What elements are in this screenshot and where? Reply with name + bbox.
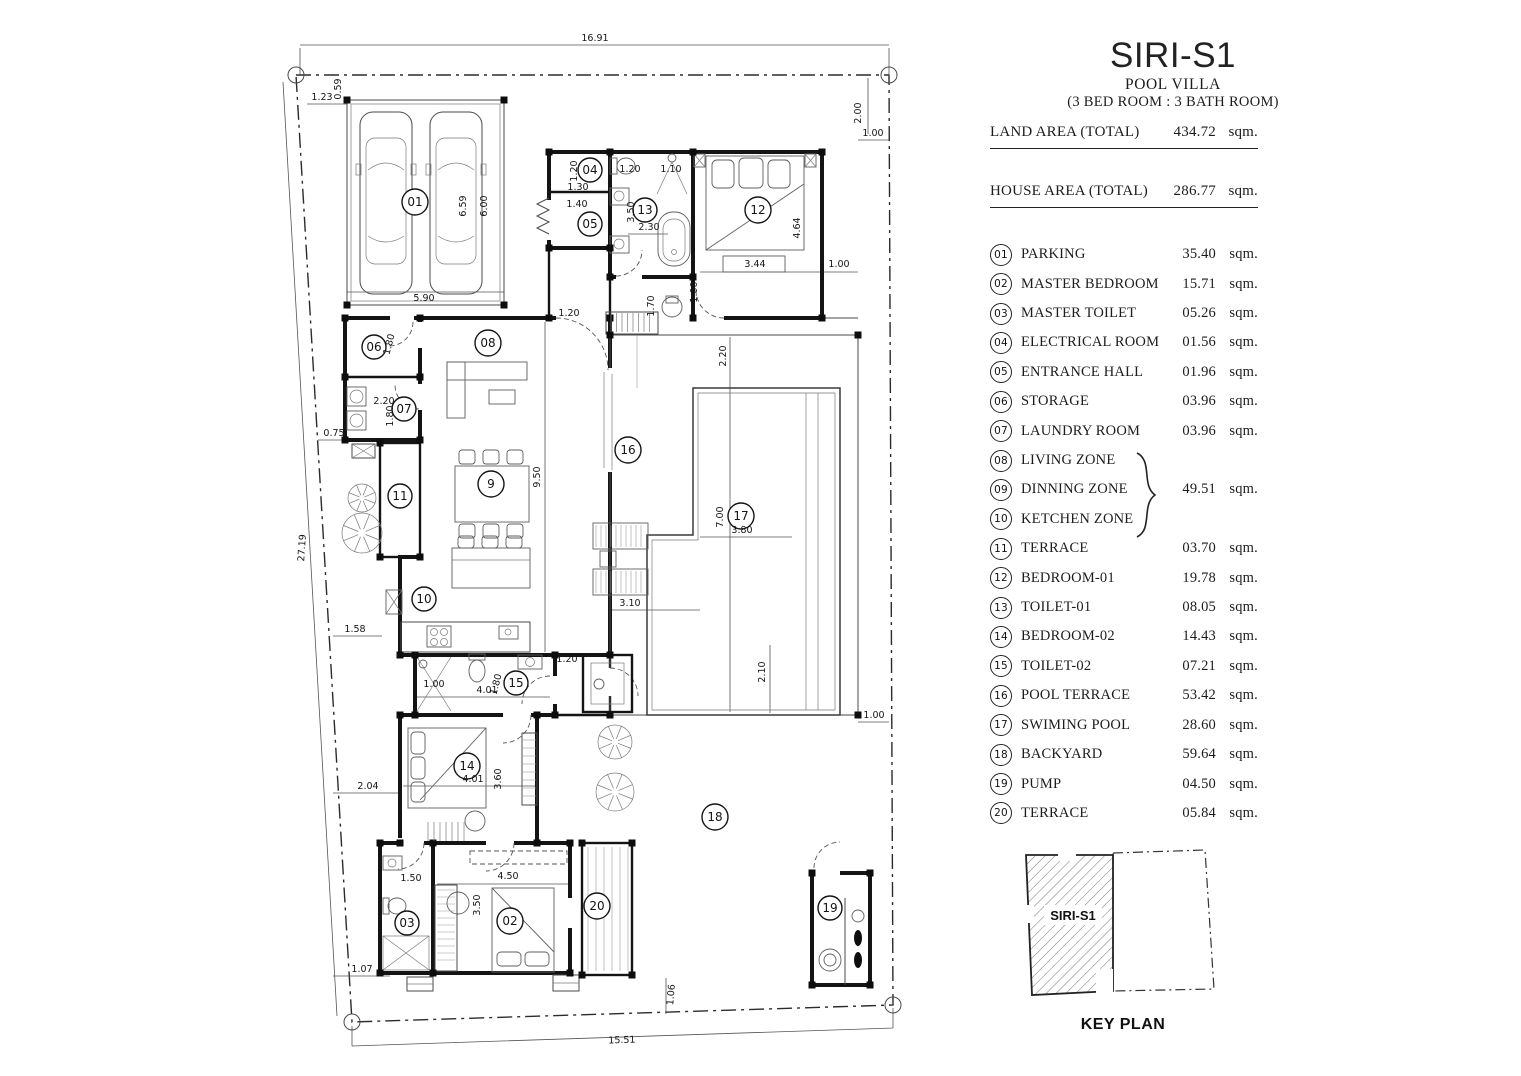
svg-text:12: 12 xyxy=(750,203,765,217)
room-number-badge: 14 xyxy=(990,626,1012,648)
schedule-row: 04ELECTRICAL ROOM01.56sqm. xyxy=(990,328,1258,357)
svg-text:1.80: 1.80 xyxy=(489,673,505,696)
room-marker: 01 xyxy=(402,189,428,215)
svg-text:1.20: 1.20 xyxy=(569,160,580,181)
svg-text:1.50: 1.50 xyxy=(400,873,421,884)
room-area-unit: sqm. xyxy=(1216,599,1258,616)
room-number-badge: 08 xyxy=(990,450,1012,472)
car xyxy=(426,112,486,294)
svg-text:19: 19 xyxy=(822,901,837,915)
schedule-row: 05ENTRANCE HALL01.96sqm. xyxy=(990,358,1258,387)
floor-plan-drawing: 01 04 05 13 12 06 07 08 9 11 10 16 17 15… xyxy=(0,0,980,1076)
svg-text:08: 08 xyxy=(480,336,495,350)
svg-text:02: 02 xyxy=(502,914,517,928)
svg-text:3.60: 3.60 xyxy=(493,768,504,789)
svg-text:18: 18 xyxy=(707,810,722,824)
room-area-unit: sqm. xyxy=(1216,423,1258,440)
room-area: 35.40 xyxy=(1170,246,1216,263)
svg-text:2.20: 2.20 xyxy=(373,396,394,407)
svg-text:15: 15 xyxy=(508,676,523,690)
schedule-row: 15TOILET-0207.21sqm. xyxy=(990,652,1258,681)
svg-text:1.40: 1.40 xyxy=(566,199,587,210)
svg-text:20: 20 xyxy=(589,899,604,913)
room-marker: 18 xyxy=(702,804,728,830)
room-area: 03.96 xyxy=(1170,393,1216,410)
room-area: 05.26 xyxy=(1170,305,1216,322)
room-marker: 11 xyxy=(388,484,412,508)
svg-text:2.00: 2.00 xyxy=(853,102,864,123)
room-label: TOILET-01 xyxy=(1021,599,1170,616)
schedule-row: 08LIVING ZONE xyxy=(990,446,1258,475)
svg-text:1.70: 1.70 xyxy=(646,295,657,316)
schedule-row: 13TOILET-0108.05sqm. xyxy=(990,593,1258,622)
room-label: ELECTRICAL ROOM xyxy=(1021,334,1170,351)
svg-text:04: 04 xyxy=(582,163,597,177)
room-marker: 19 xyxy=(818,896,842,920)
svg-text:1.00: 1.00 xyxy=(862,128,883,139)
key-plan-drawing: SIRI-S1 xyxy=(1018,843,1228,1003)
house-area-row: HOUSE AREA (TOTAL) 286.77 sqm. xyxy=(990,183,1258,208)
svg-text:01: 01 xyxy=(407,195,422,209)
svg-text:3.50: 3.50 xyxy=(472,894,483,915)
room-label: BEDROOM-02 xyxy=(1021,628,1170,645)
room-area-unit: sqm. xyxy=(1216,334,1258,351)
land-area-row: LAND AREA (TOTAL) 434.72 sqm. xyxy=(990,124,1258,149)
room-area: 01.56 xyxy=(1170,334,1216,351)
land-area-unit: sqm. xyxy=(1216,124,1258,141)
outdoor-steps xyxy=(407,975,579,991)
villa-subtitle: POOL VILLA xyxy=(1037,76,1309,94)
svg-text:5.90: 5.90 xyxy=(413,293,434,304)
svg-text:1.00: 1.00 xyxy=(863,710,884,721)
land-area-label: LAND AREA (TOTAL) xyxy=(990,124,1164,141)
svg-text:1.20: 1.20 xyxy=(556,654,577,665)
room-area-unit: sqm. xyxy=(1216,276,1258,293)
villa-spec: (3 BED ROOM : 3 BATH ROOM) xyxy=(1037,94,1309,111)
room-area-unit: sqm. xyxy=(1216,746,1258,763)
room-number-badge: 03 xyxy=(990,303,1012,325)
room-number-badge: 01 xyxy=(990,244,1012,266)
room-area: 03.70 xyxy=(1170,540,1216,557)
room-number-badge: 13 xyxy=(990,597,1012,619)
svg-text:4.50: 4.50 xyxy=(497,871,518,882)
room-marker: 10 xyxy=(412,587,436,611)
svg-text:2.30: 2.30 xyxy=(638,222,659,233)
room-area: 28.60 xyxy=(1170,717,1216,734)
svg-text:0.75: 0.75 xyxy=(323,428,344,439)
land-area-value: 434.72 xyxy=(1164,124,1216,141)
room-number-badge: 11 xyxy=(990,538,1012,560)
svg-text:3.10: 3.10 xyxy=(619,598,640,609)
svg-text:1.80: 1.80 xyxy=(382,333,398,356)
room-number-badge: 17 xyxy=(990,714,1012,736)
room-marker: 08 xyxy=(475,330,501,356)
room-label: LAUNDRY ROOM xyxy=(1021,423,1170,440)
schedule-row: 20TERRACE05.84sqm. xyxy=(990,799,1258,828)
svg-text:9.50: 9.50 xyxy=(532,466,543,487)
key-plan-caption: KEY PLAN xyxy=(1018,1016,1228,1034)
schedule-row: 03MASTER TOILET05.26sqm. xyxy=(990,299,1258,328)
room-marker: 9 xyxy=(478,471,504,497)
page-title: SIRI-S1 xyxy=(1037,36,1309,76)
room-label: SWIMING POOL xyxy=(1021,717,1170,734)
room-label: MASTER BEDROOM xyxy=(1021,276,1170,293)
room-label: PUMP xyxy=(1021,776,1170,793)
schedule-row: 19PUMP04.50sqm. xyxy=(990,769,1258,798)
svg-text:1.10: 1.10 xyxy=(660,164,681,175)
schedule-row: 14BEDROOM-0214.43sqm. xyxy=(990,622,1258,651)
svg-text:1.20: 1.20 xyxy=(558,308,579,319)
room-area-unit: sqm. xyxy=(1216,246,1258,263)
room-number-badge: 09 xyxy=(990,479,1012,501)
svg-text:0.59: 0.59 xyxy=(333,78,344,99)
room-label: POOL TERRACE xyxy=(1021,687,1170,704)
schedule-row: 12BEDROOM-0119.78sqm. xyxy=(990,563,1258,592)
svg-text:11: 11 xyxy=(392,489,407,503)
room-area-unit: sqm. xyxy=(1216,805,1258,822)
schedule-row: 02MASTER BEDROOM15.71sqm. xyxy=(990,269,1258,298)
room-number-badge: 18 xyxy=(990,744,1012,766)
kitchen-furniture xyxy=(386,536,530,652)
zone-brace xyxy=(1133,451,1163,539)
schedule-row: 01PARKING35.40sqm. xyxy=(990,240,1258,269)
schedule-row: 16POOL TERRACE53.42sqm. xyxy=(990,681,1258,710)
svg-text:1.06: 1.06 xyxy=(665,984,678,1006)
room-label: BEDROOM-01 xyxy=(1021,570,1170,587)
svg-text:4.64: 4.64 xyxy=(792,217,803,238)
room-area: 49.51 xyxy=(1170,481,1216,498)
room-number-badge: 20 xyxy=(990,802,1012,824)
laundry-fixtures xyxy=(347,387,375,458)
schedule-row: 07LAUNDRY ROOM03.96sqm. xyxy=(990,416,1258,445)
room-marker: 05 xyxy=(578,212,602,236)
room-area-unit: sqm. xyxy=(1216,658,1258,675)
room-area: 07.21 xyxy=(1170,658,1216,675)
svg-text:10: 10 xyxy=(416,592,431,606)
room-label: TERRACE xyxy=(1021,540,1170,557)
svg-text:9: 9 xyxy=(487,477,495,491)
master-bedroom-furniture xyxy=(435,885,554,972)
room-number-badge: 02 xyxy=(990,273,1012,295)
room-area: 04.50 xyxy=(1170,776,1216,793)
svg-text:1.07: 1.07 xyxy=(351,964,372,975)
house-area-label: HOUSE AREA (TOTAL) xyxy=(990,183,1164,200)
room-label: ENTRANCE HALL xyxy=(1021,364,1170,381)
svg-text:15.51: 15.51 xyxy=(608,1035,636,1047)
room-number-badge: 19 xyxy=(990,773,1012,795)
room-area: 53.42 xyxy=(1170,687,1216,704)
svg-text:14: 14 xyxy=(459,759,474,773)
schedule-row: 17SWIMING POOL28.60sqm. xyxy=(990,711,1258,740)
room-marker: 20 xyxy=(584,893,610,919)
svg-text:17: 17 xyxy=(733,509,748,523)
room-area: 05.84 xyxy=(1170,805,1216,822)
svg-text:1.80: 1.80 xyxy=(385,405,396,426)
key-plan: SIRI-S1 KEY PLAN xyxy=(1018,843,1228,1034)
room-area: 59.64 xyxy=(1170,746,1216,763)
room-label: STORAGE xyxy=(1021,393,1170,410)
svg-text:1.30: 1.30 xyxy=(567,182,588,193)
room-area-unit: sqm. xyxy=(1216,305,1258,322)
svg-text:2.04: 2.04 xyxy=(357,781,378,792)
svg-text:13: 13 xyxy=(637,203,652,217)
room-area-unit: sqm. xyxy=(1216,776,1258,793)
room-label: BACKYARD xyxy=(1021,746,1170,763)
room-label: TOILET-02 xyxy=(1021,658,1170,675)
room-marker: 15 xyxy=(504,671,528,695)
room-area: 01.96 xyxy=(1170,364,1216,381)
svg-text:4.01: 4.01 xyxy=(462,774,483,785)
room-area-unit: sqm. xyxy=(1216,628,1258,645)
room-label: PARKING xyxy=(1021,246,1170,263)
schedule-row: 10KETCHEN ZONE xyxy=(990,505,1258,534)
svg-text:06: 06 xyxy=(366,340,381,354)
swimming-pool xyxy=(647,388,840,715)
room-area-unit: sqm. xyxy=(1216,540,1258,557)
svg-text:1.58: 1.58 xyxy=(344,624,365,635)
room-area: 14.43 xyxy=(1170,628,1216,645)
room-area: 19.78 xyxy=(1170,570,1216,587)
room-number-badge: 10 xyxy=(990,508,1012,530)
svg-text:2.20: 2.20 xyxy=(718,345,729,366)
room-number-badge: 06 xyxy=(990,391,1012,413)
svg-text:03: 03 xyxy=(399,916,414,930)
house-area-value: 286.77 xyxy=(1164,183,1216,200)
svg-text:3.50: 3.50 xyxy=(626,201,637,222)
svg-text:16: 16 xyxy=(620,443,635,457)
living-furniture xyxy=(447,362,527,418)
furniture xyxy=(347,154,864,991)
schedule-row: 11TERRACE03.70sqm. xyxy=(990,534,1258,563)
room-label: MASTER TOILET xyxy=(1021,305,1170,322)
room-area: 15.71 xyxy=(1170,276,1216,293)
room-label: TERRACE xyxy=(1021,805,1170,822)
room-marker: 03 xyxy=(395,911,419,935)
room-number-badge: 05 xyxy=(990,361,1012,383)
svg-text:6.00: 6.00 xyxy=(479,195,490,216)
schedule-row: 18BACKYARD59.64sqm. xyxy=(990,740,1258,769)
room-number-badge: 04 xyxy=(990,332,1012,354)
room-area: 08.05 xyxy=(1170,599,1216,616)
svg-text:1.00: 1.00 xyxy=(423,679,444,690)
room-markers: 01 04 05 13 12 06 07 08 9 11 10 16 17 15… xyxy=(362,158,842,935)
room-number-badge: 12 xyxy=(990,567,1012,589)
room-number-badge: 07 xyxy=(990,420,1012,442)
svg-text:6.59: 6.59 xyxy=(458,195,469,216)
svg-text:3.44: 3.44 xyxy=(744,259,765,270)
room-area-unit: sqm. xyxy=(1216,393,1258,410)
room-area-unit: sqm. xyxy=(1216,481,1258,498)
schedule-row: 09DINNING ZONE49.51sqm. xyxy=(990,475,1258,504)
room-number-badge: 15 xyxy=(990,655,1012,677)
house-area-unit: sqm. xyxy=(1216,183,1258,200)
svg-text:07: 07 xyxy=(396,402,411,416)
svg-text:16.91: 16.91 xyxy=(581,33,608,44)
room-area: 03.96 xyxy=(1170,423,1216,440)
svg-text:7.00: 7.00 xyxy=(715,506,726,527)
svg-text:3.80: 3.80 xyxy=(731,525,752,536)
svg-text:1.00: 1.00 xyxy=(828,259,849,270)
room-marker: 02 xyxy=(497,908,523,934)
room-marker: 04 xyxy=(578,158,602,182)
svg-text:1.00: 1.00 xyxy=(689,281,700,302)
room-area-unit: sqm. xyxy=(1216,687,1258,704)
room-area-unit: sqm. xyxy=(1216,717,1258,734)
svg-text:05: 05 xyxy=(582,217,597,231)
room-area-unit: sqm. xyxy=(1216,364,1258,381)
svg-text:1.20: 1.20 xyxy=(619,164,640,175)
svg-text:27.19: 27.19 xyxy=(296,534,309,562)
room-number-badge: 16 xyxy=(990,685,1012,707)
doors xyxy=(389,198,840,928)
adjacent-parcel xyxy=(1113,850,1214,991)
room-schedule: 01PARKING35.40sqm.02MASTER BEDROOM15.71s… xyxy=(990,240,1258,828)
key-plan-unit-label: SIRI-S1 xyxy=(1050,908,1096,923)
room-area-unit: sqm. xyxy=(1216,570,1258,587)
room-marker: 12 xyxy=(745,197,771,223)
svg-text:1.23: 1.23 xyxy=(311,92,332,103)
schedule-row: 06STORAGE03.96sqm. xyxy=(990,387,1258,416)
room-marker: 16 xyxy=(615,437,641,463)
svg-text:2.10: 2.10 xyxy=(757,661,768,682)
